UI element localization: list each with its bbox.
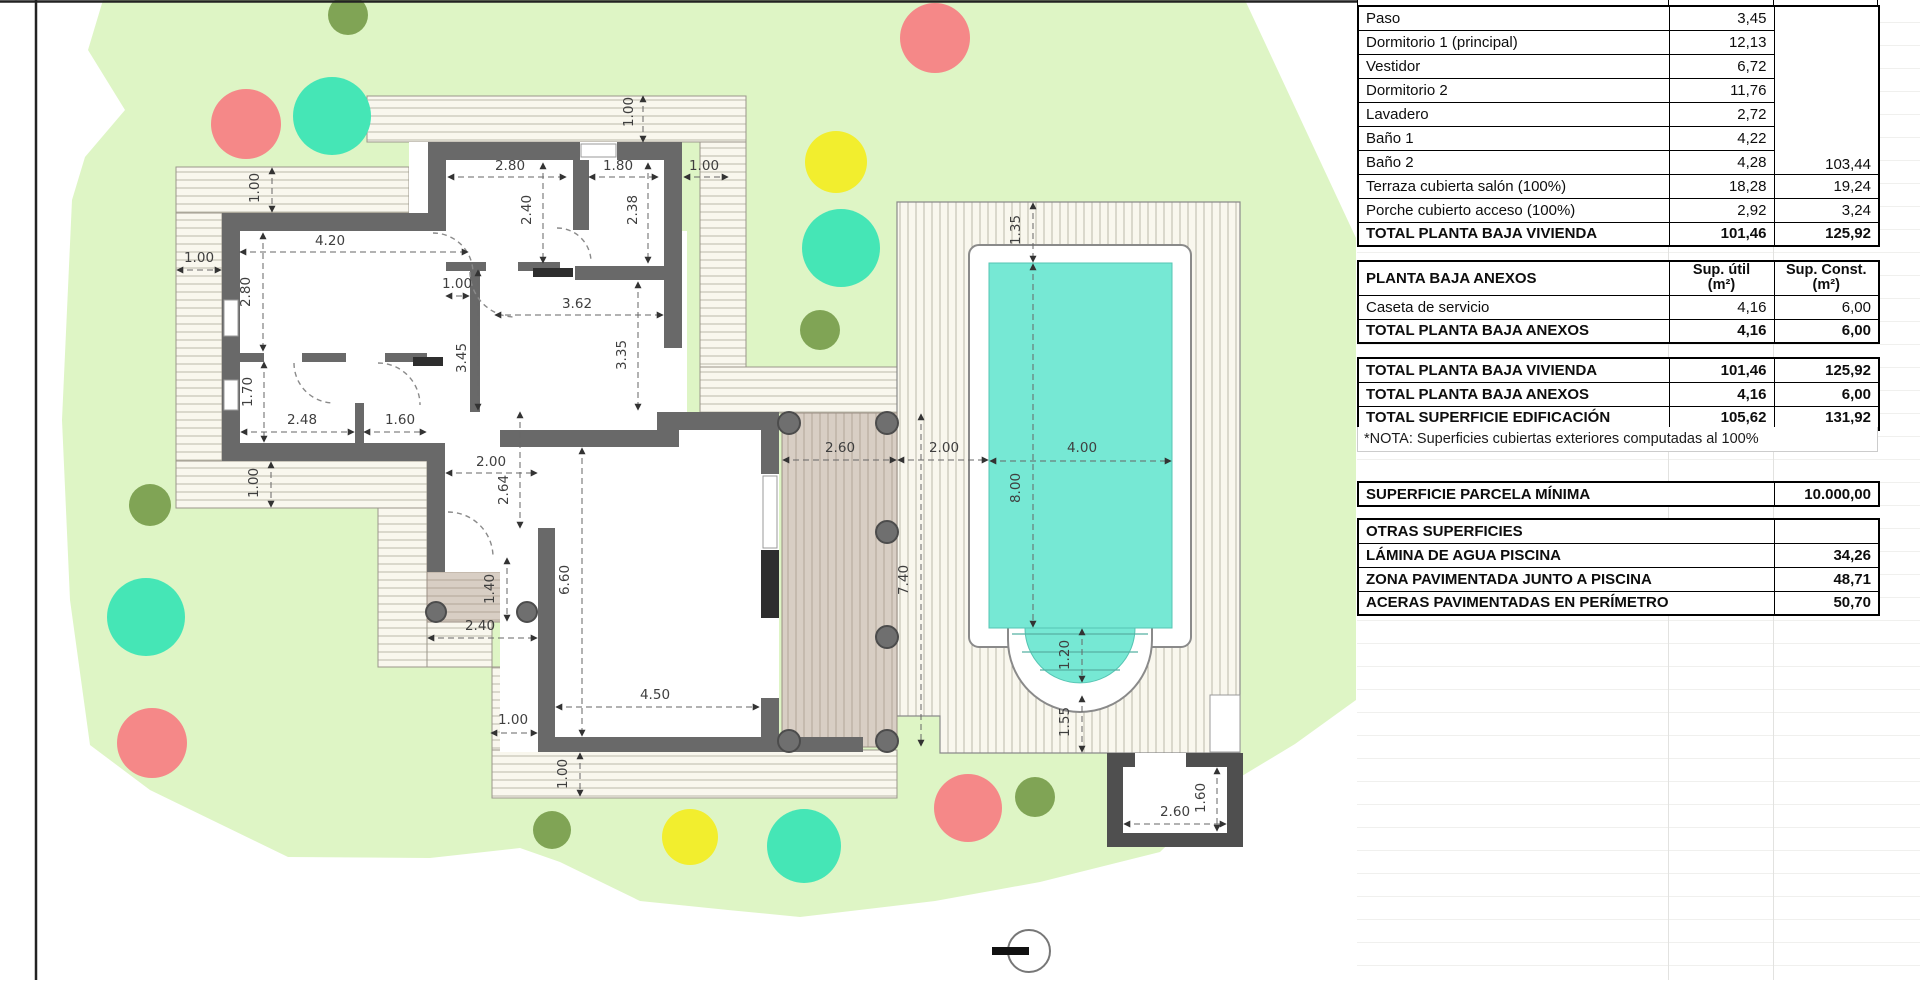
table-row: TOTAL PLANTA BAJA ANEXOS4,166,00 bbox=[1358, 382, 1879, 406]
table-cell: 2,72 bbox=[1669, 102, 1774, 126]
dimension-label: 8.00 bbox=[1008, 473, 1024, 503]
table-cell: 48,71 bbox=[1774, 567, 1879, 591]
table-cell: Baño 1 bbox=[1358, 126, 1669, 150]
dimension-label: 4.20 bbox=[315, 233, 345, 249]
table-cell: Sup. útil(m²) bbox=[1669, 261, 1774, 295]
table-cell: 3,45 bbox=[1669, 6, 1774, 30]
table-cell: Vestidor bbox=[1358, 54, 1669, 78]
dimension-label: 1.00 bbox=[246, 468, 262, 498]
table-cell bbox=[1774, 519, 1879, 543]
section-marker-icon bbox=[992, 930, 1050, 972]
dimension-label: 2.64 bbox=[496, 475, 512, 505]
dimension-label: 2.40 bbox=[519, 195, 535, 225]
dimension-label: 1.20 bbox=[1057, 640, 1073, 670]
dimension-label: 1.80 bbox=[603, 158, 633, 174]
table-cell: SUPERFICIE PARCELA MÍNIMA bbox=[1358, 482, 1774, 506]
table-resumen: TOTAL PLANTA BAJA VIVIENDA101,46125,92TO… bbox=[1357, 357, 1880, 431]
table-cell: 125,92 bbox=[1774, 358, 1879, 382]
table-total-row: TOTAL PLANTA BAJA ANEXOS4,166,00 bbox=[1358, 319, 1879, 343]
dimension-label: 3.45 bbox=[454, 343, 470, 373]
dimension-label: 1.40 bbox=[482, 574, 498, 604]
table-row: Porche cubierto acceso (100%)2,923,24 bbox=[1358, 198, 1879, 222]
table-cell: TOTAL PLANTA BAJA ANEXOS bbox=[1358, 319, 1669, 343]
table-cell: 11,76 bbox=[1669, 78, 1774, 102]
table-cell: Dormitorio 1 (principal) bbox=[1358, 30, 1669, 54]
dimension-label: 4.50 bbox=[640, 687, 670, 703]
table-cell: 3,24 bbox=[1774, 198, 1879, 222]
dimension-label: 1.00 bbox=[442, 276, 472, 292]
tree-red-icon bbox=[117, 708, 187, 778]
tree-olive-icon bbox=[129, 484, 171, 526]
tree-red-icon bbox=[934, 774, 1002, 842]
table-parcela: SUPERFICIE PARCELA MÍNIMA10.000,00 bbox=[1357, 481, 1880, 507]
table-cell: TOTAL PLANTA BAJA ANEXOS bbox=[1358, 382, 1669, 406]
dimension-label: 2.00 bbox=[476, 454, 506, 470]
table-cell: 19,24 bbox=[1774, 174, 1879, 198]
table-cell: 4,16 bbox=[1669, 295, 1774, 319]
dimension-label: 2.60 bbox=[1160, 804, 1190, 820]
table-cell: ACERAS PAVIMENTADAS EN PERÍMETRO bbox=[1358, 591, 1774, 615]
tree-olive-icon bbox=[800, 310, 840, 350]
dimension-label: 1.00 bbox=[498, 712, 528, 728]
table-row: TOTAL PLANTA BAJA VIVIENDA101,46125,92 bbox=[1358, 358, 1879, 382]
dimension-label: 1.00 bbox=[184, 250, 214, 266]
table-cell: 4,28 bbox=[1669, 150, 1774, 174]
service-pad bbox=[1210, 695, 1240, 752]
table-cell: Caseta de servicio bbox=[1358, 295, 1669, 319]
tree-teal-icon bbox=[107, 578, 185, 656]
table-cell: OTRAS SUPERFICIES bbox=[1358, 519, 1774, 543]
table-cell: 34,26 bbox=[1774, 543, 1879, 567]
table-row: LÁMINA DE AGUA PISCINA34,26 bbox=[1358, 543, 1879, 567]
dimension-label: 1.00 bbox=[247, 173, 263, 203]
table-cell: 10.000,00 bbox=[1774, 482, 1879, 506]
dimension-label: 6.60 bbox=[557, 565, 573, 595]
table-cell: 18,28 bbox=[1669, 174, 1774, 198]
table-row: ZONA PAVIMENTADA JUNTO A PISCINA48,71 bbox=[1358, 567, 1879, 591]
caseta-de-servicio bbox=[1107, 753, 1243, 847]
table-cell: 4,16 bbox=[1669, 319, 1774, 343]
dimension-label: 2.38 bbox=[625, 195, 641, 225]
tree-red-icon bbox=[211, 89, 281, 159]
table-cell: 125,92 bbox=[1774, 222, 1879, 246]
dimension-label: 1.00 bbox=[621, 97, 637, 127]
table-cell: 12,13 bbox=[1669, 30, 1774, 54]
dimension-label: 2.00 bbox=[929, 440, 959, 456]
table-cell: Lavadero bbox=[1358, 102, 1669, 126]
table-cell: 6,00 bbox=[1774, 382, 1879, 406]
table-row: SUPERFICIE PARCELA MÍNIMA10.000,00 bbox=[1358, 482, 1879, 506]
dimension-label: 3.62 bbox=[562, 296, 592, 312]
table-cell: 101,46 bbox=[1669, 222, 1774, 246]
dimension-label: 1.60 bbox=[385, 412, 415, 428]
table-row: Caseta de servicio4,166,00 bbox=[1358, 295, 1879, 319]
table-cell: 6,00 bbox=[1774, 295, 1879, 319]
tree-red-icon bbox=[900, 3, 970, 73]
table-cell: 4,22 bbox=[1669, 126, 1774, 150]
table-cell: 6,72 bbox=[1669, 54, 1774, 78]
tree-yellow-icon bbox=[805, 131, 867, 193]
area-table-panel: Paso3,45103,44Dormitorio 1 (principal)12… bbox=[1357, 0, 1920, 980]
table-cell: 50,70 bbox=[1774, 591, 1879, 615]
dimension-label: 1.70 bbox=[240, 377, 256, 407]
table-cell: TOTAL PLANTA BAJA VIVIENDA bbox=[1358, 222, 1669, 246]
dimension-label: 7.40 bbox=[896, 565, 912, 595]
table-cell: Sup. Const.(m²) bbox=[1774, 261, 1879, 295]
dimension-label: 2.60 bbox=[825, 440, 855, 456]
table-cell: Dormitorio 2 bbox=[1358, 78, 1669, 102]
dimension-label: 2.48 bbox=[287, 412, 317, 428]
table-nota: *NOTA: Superficies cubiertas exteriores … bbox=[1357, 427, 1878, 452]
dimension-label: 1.00 bbox=[555, 759, 571, 789]
dimension-label: 1.55 bbox=[1057, 707, 1073, 737]
table-cell: 103,44 bbox=[1774, 6, 1879, 174]
table-row: Paso3,45103,44 bbox=[1358, 6, 1879, 30]
dimension-label: 4.00 bbox=[1067, 440, 1097, 456]
table-cell: TOTAL PLANTA BAJA VIVIENDA bbox=[1358, 358, 1669, 382]
table-anexos: PLANTA BAJA ANEXOSSup. útil(m²)Sup. Cons… bbox=[1357, 260, 1880, 344]
tree-teal-icon bbox=[767, 809, 841, 883]
table-row: Terraza cubierta salón (100%)18,2819,24 bbox=[1358, 174, 1879, 198]
table-cell: LÁMINA DE AGUA PISCINA bbox=[1358, 543, 1774, 567]
dimension-label: 2.80 bbox=[495, 158, 525, 174]
table-cell: ZONA PAVIMENTADA JUNTO A PISCINA bbox=[1358, 567, 1774, 591]
table-cell: 6,00 bbox=[1774, 319, 1879, 343]
dimension-label: 2.80 bbox=[238, 277, 254, 307]
table-cell: Terraza cubierta salón (100%) bbox=[1358, 174, 1669, 198]
table-vivienda: Paso3,45103,44Dormitorio 1 (principal)12… bbox=[1357, 5, 1880, 247]
tree-olive-icon bbox=[1015, 777, 1055, 817]
table-header-row: PLANTA BAJA ANEXOSSup. útil(m²)Sup. Cons… bbox=[1358, 261, 1879, 295]
table-cell: 2,92 bbox=[1669, 198, 1774, 222]
dimension-label: 1.00 bbox=[689, 158, 719, 174]
table-header-row: OTRAS SUPERFICIES bbox=[1358, 519, 1879, 543]
tree-yellow-icon bbox=[662, 809, 718, 865]
table-cell: 101,46 bbox=[1669, 358, 1774, 382]
dimension-label: 3.35 bbox=[614, 340, 630, 370]
table-cell: Porche cubierto acceso (100%) bbox=[1358, 198, 1669, 222]
table-cell: PLANTA BAJA ANEXOS bbox=[1358, 261, 1669, 295]
dimension-label: 1.60 bbox=[1193, 783, 1209, 813]
dimension-label: 1.35 bbox=[1008, 215, 1024, 245]
table-otras: OTRAS SUPERFICIESLÁMINA DE AGUA PISCINA3… bbox=[1357, 518, 1880, 616]
dimension-label: 2.40 bbox=[465, 618, 495, 634]
table-cell: 4,16 bbox=[1669, 382, 1774, 406]
tree-teal-icon bbox=[293, 77, 371, 155]
table-row: ACERAS PAVIMENTADAS EN PERÍMETRO50,70 bbox=[1358, 591, 1879, 615]
tree-olive-icon bbox=[533, 811, 571, 849]
table-total-row: TOTAL PLANTA BAJA VIVIENDA101,46125,92 bbox=[1358, 222, 1879, 246]
covered-terrace bbox=[782, 413, 897, 747]
table-cell: Baño 2 bbox=[1358, 150, 1669, 174]
tree-teal-icon bbox=[802, 209, 880, 287]
pool bbox=[969, 245, 1191, 712]
table-cell: Paso bbox=[1358, 6, 1669, 30]
